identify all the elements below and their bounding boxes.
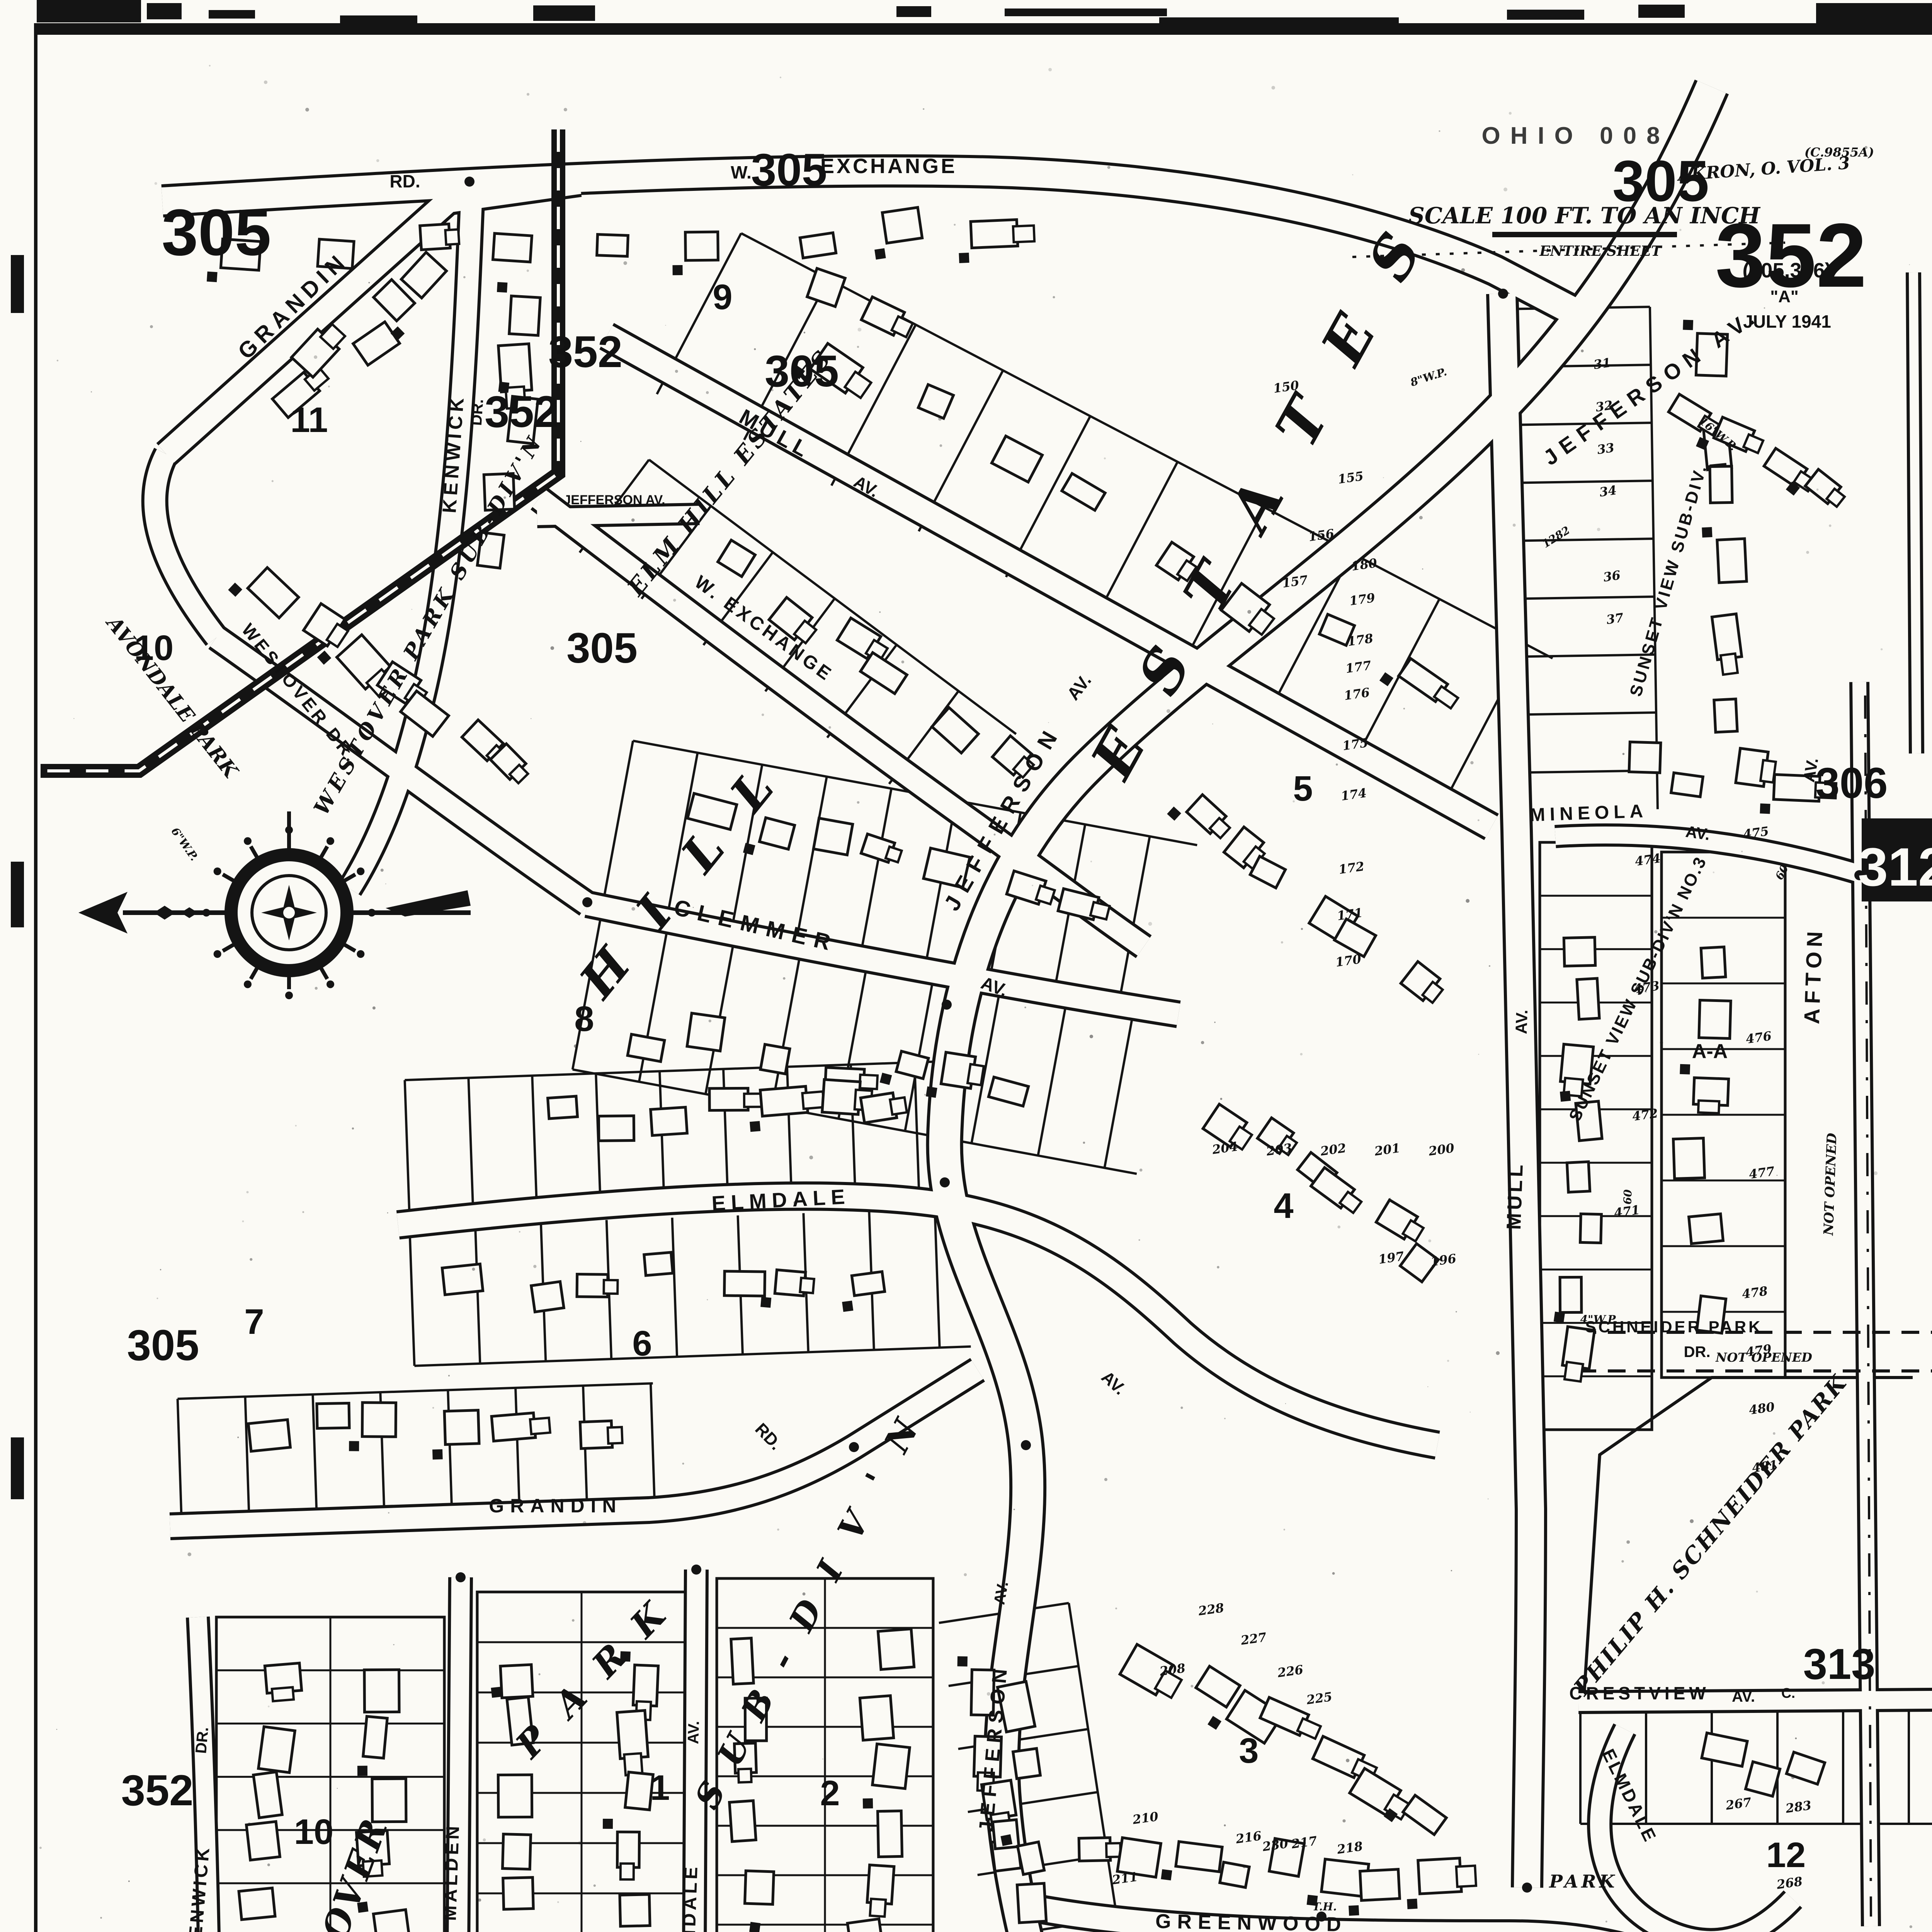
area-label-sunset-view-north: SUNSET VIEW SUB-DIV. — [1626, 461, 1711, 699]
block-number: 9 — [713, 277, 732, 317]
street-label-schneider-dr: DR. — [1684, 1344, 1711, 1361]
speckle — [268, 1706, 270, 1708]
sheet-ref-left-305: 305 — [127, 1321, 199, 1369]
block-number: 7 — [244, 1302, 264, 1342]
speckle — [1115, 1607, 1117, 1609]
lot-number: 155 — [1337, 469, 1364, 487]
lot-line — [1509, 655, 1655, 657]
junction-dot — [1021, 1440, 1031, 1450]
speckle — [572, 1619, 575, 1622]
speckle — [574, 1044, 577, 1048]
house — [957, 219, 1035, 263]
utility-mark: 6"W.P. — [168, 825, 201, 863]
speckle — [1470, 1412, 1471, 1413]
house — [1702, 1733, 1747, 1767]
speckle — [709, 1020, 711, 1022]
speckle — [295, 1125, 297, 1126]
speckle — [828, 726, 831, 729]
lot-line — [468, 1078, 473, 1217]
speckle — [246, 1191, 248, 1193]
speckle — [1014, 1509, 1015, 1510]
sheet-ref-exchange-305: 305 — [751, 145, 827, 196]
lot-number: 474 — [1634, 851, 1662, 869]
speckle — [857, 346, 859, 348]
house — [1746, 1762, 1780, 1796]
speckle — [1605, 1921, 1607, 1923]
lot-number: 36 — [1602, 568, 1621, 585]
house — [1679, 1064, 1729, 1114]
street-label-grandin-lower-rd: RD. — [751, 1420, 785, 1454]
speckle — [1910, 1925, 1912, 1928]
street-note-afton-not-opened: NOT OPENED — [1821, 1133, 1840, 1236]
house — [431, 1410, 480, 1460]
lot-number: 171 — [1336, 905, 1364, 923]
house — [1701, 947, 1726, 978]
speckle — [1816, 488, 1818, 490]
speckle — [1509, 112, 1512, 115]
house — [1714, 699, 1737, 732]
speckle — [411, 609, 412, 610]
speckle — [314, 355, 317, 359]
punch-hole-mark — [11, 862, 24, 927]
house — [1786, 1752, 1825, 1784]
speckle — [1346, 1759, 1349, 1762]
lot-number: 37 — [1605, 610, 1624, 627]
block-number: 5 — [1293, 769, 1313, 808]
sheet-ref-southwest-352: 352 — [121, 1766, 194, 1815]
lot-number: 176 — [1343, 685, 1371, 703]
house — [847, 1919, 885, 1932]
speckle — [1478, 819, 1480, 821]
house — [1405, 1857, 1477, 1909]
speckle — [1167, 709, 1170, 713]
block-number: 1 — [650, 1768, 670, 1808]
block-number: 4 — [1274, 1186, 1293, 1226]
house — [247, 1821, 280, 1860]
speckle — [155, 182, 157, 185]
title-scale-note: SCALE 100 FT. TO AN INCH — [1408, 202, 1761, 229]
house — [1311, 1168, 1365, 1216]
speckle — [783, 977, 785, 980]
street-label-mull-vert: MULL — [1503, 1161, 1527, 1230]
street-label-sundale: SUNDALE — [677, 1864, 702, 1932]
utility-mark: 1282 — [1540, 524, 1572, 550]
scale-note-underline — [1492, 232, 1677, 237]
speckle — [1829, 524, 1831, 527]
speckle — [1478, 1054, 1479, 1055]
speckle — [1597, 528, 1600, 531]
lot-number: 202 — [1319, 1141, 1347, 1159]
speckle — [1713, 872, 1714, 873]
house — [401, 252, 447, 298]
speckle — [1412, 1221, 1413, 1222]
speckle — [804, 332, 805, 333]
speckle — [706, 391, 709, 394]
speckle — [1293, 800, 1294, 802]
speckle — [527, 269, 529, 272]
speckle — [923, 108, 924, 110]
lot-line — [1038, 992, 1068, 1156]
house — [988, 1077, 1028, 1106]
speckle — [100, 1917, 102, 1919]
speckle — [1032, 885, 1033, 886]
speckle — [1773, 1432, 1776, 1435]
speckle — [39, 1847, 42, 1849]
map-canvas: 9111087654321101231323334363715015515615… — [0, 0, 1932, 1932]
lot-number: 170 — [1335, 952, 1362, 970]
street-label-mineola-av: AV. — [1685, 822, 1711, 844]
house — [860, 1696, 893, 1740]
speckle — [1034, 1739, 1035, 1740]
house — [880, 1048, 929, 1093]
house — [239, 1888, 275, 1920]
scan-blob — [340, 15, 417, 24]
speckle — [387, 1213, 388, 1214]
speckle — [631, 519, 635, 522]
speckle — [1626, 1540, 1630, 1544]
scan-blob — [1507, 10, 1584, 20]
speckle — [1284, 1529, 1285, 1530]
speckle — [463, 276, 466, 278]
scan-blob — [1159, 17, 1399, 24]
lot-line — [672, 1218, 677, 1357]
speckle — [1337, 1226, 1340, 1229]
speckle — [1690, 1519, 1694, 1523]
speckle — [352, 1128, 354, 1129]
street-label-sundale-av: AV. — [685, 1721, 702, 1745]
speckle — [1764, 307, 1765, 309]
speckle — [857, 801, 860, 804]
speckle — [432, 1407, 434, 1408]
speckle — [1139, 1168, 1143, 1172]
street-label-jefferson-stub: JEFFERSON AV. — [563, 493, 665, 507]
house — [1702, 526, 1747, 583]
house — [861, 834, 903, 865]
title-scale-scope: ENTIRE SHEET — [1539, 243, 1662, 259]
house — [731, 1638, 753, 1684]
lot-number: 218 — [1336, 1839, 1364, 1857]
speckle — [673, 599, 676, 602]
speckle — [675, 370, 678, 373]
house — [495, 282, 541, 335]
speckle — [1513, 524, 1516, 527]
street-label-kenwick-lower-dr: DR. — [192, 1726, 212, 1754]
speckle — [1403, 708, 1405, 709]
speckle — [302, 1211, 304, 1213]
speckle — [583, 1521, 586, 1524]
speckle — [519, 1231, 520, 1233]
lot-line — [1508, 597, 1655, 599]
house — [1161, 1840, 1222, 1886]
speckle — [1301, 928, 1303, 930]
junction-dot — [1522, 1883, 1532, 1893]
scan-blob — [209, 10, 255, 19]
speckle — [435, 1209, 437, 1210]
area-label-section-aa: A-A — [1692, 1040, 1728, 1063]
house — [492, 1412, 550, 1441]
speckle — [1806, 551, 1809, 554]
speckle — [940, 444, 942, 447]
house — [1058, 889, 1111, 923]
lot-number: 268 — [1776, 1874, 1803, 1892]
speckle — [305, 108, 309, 112]
speckle — [1090, 1035, 1093, 1038]
speckle — [209, 65, 211, 66]
lot-number: 177 — [1345, 658, 1372, 676]
block-number: 2 — [820, 1774, 840, 1813]
house — [807, 269, 845, 307]
speckle — [1224, 1418, 1226, 1419]
speckle — [1342, 1819, 1345, 1822]
lot-line — [475, 1225, 480, 1364]
speckle — [1503, 187, 1507, 191]
street-label-elmdale-av: AV. — [1098, 1367, 1129, 1399]
lot-line — [448, 1390, 452, 1514]
lot-number: 480 — [1748, 1400, 1776, 1418]
speckle — [551, 646, 554, 650]
house — [839, 1272, 887, 1312]
speckle — [858, 328, 862, 332]
house — [531, 1282, 564, 1312]
lot-line — [1506, 481, 1653, 483]
house — [745, 1871, 774, 1905]
house — [597, 235, 628, 257]
speckle — [1874, 1171, 1878, 1175]
sheet-ref-southeast-313: 313 — [1803, 1640, 1876, 1688]
speckle — [1881, 648, 1883, 650]
scan-blob — [1005, 9, 1167, 16]
house — [1062, 473, 1105, 510]
speckle — [1791, 1776, 1795, 1779]
spread-letter-park_spread: A — [544, 1677, 595, 1728]
speckle — [1201, 1041, 1204, 1044]
lot-number: 211 — [1111, 1869, 1139, 1888]
speckle — [557, 1901, 559, 1903]
junction-dot — [849, 1442, 859, 1452]
house — [863, 1798, 902, 1857]
sheet-ref-east-patch: 312 — [1858, 837, 1932, 897]
block-number: 12 — [1766, 1835, 1806, 1875]
speckle — [1104, 457, 1106, 459]
lot-number: 204 — [1211, 1139, 1239, 1157]
speckle — [483, 1838, 486, 1842]
house — [724, 1271, 765, 1296]
speckle — [879, 611, 881, 613]
speckle — [1909, 264, 1910, 265]
house — [502, 1834, 531, 1869]
lot-number: 179 — [1349, 590, 1376, 609]
speckle — [1024, 1007, 1026, 1008]
house — [1567, 1162, 1590, 1192]
house — [742, 1922, 786, 1932]
block-number: 10 — [294, 1812, 333, 1852]
speckle — [1217, 1266, 1219, 1268]
house — [687, 1013, 725, 1051]
speckle — [128, 1881, 130, 1882]
house — [1564, 937, 1595, 966]
house — [442, 1264, 483, 1295]
house — [730, 1801, 756, 1842]
street-label-mineola: MINEOLA — [1529, 801, 1648, 826]
sheet-ref-west-352: 352 — [548, 327, 622, 377]
speckle — [381, 869, 384, 872]
house — [709, 1088, 762, 1111]
utility-mark: 8"W.P. — [1408, 365, 1448, 389]
speckle — [337, 1788, 338, 1789]
house — [813, 818, 852, 855]
lot-number: 196 — [1430, 1251, 1457, 1269]
speckle — [1332, 1572, 1335, 1575]
street-label-exchange: EXCHANGE — [820, 155, 957, 178]
house — [364, 1670, 399, 1712]
street-label-schneider-park: SCHNEIDER PARK — [1585, 1318, 1763, 1336]
house — [878, 1629, 914, 1669]
junction-dot — [691, 1565, 701, 1575]
speckle — [1447, 1360, 1449, 1362]
utility-mark: T.H. — [1312, 1900, 1337, 1913]
speckle — [1107, 166, 1111, 169]
speckle — [682, 1463, 684, 1464]
street-label-crestview-c: C. — [1781, 1685, 1795, 1701]
house — [1689, 1214, 1723, 1243]
area-label-elmdale-park: PARK — [1548, 1871, 1617, 1892]
house — [317, 1403, 349, 1428]
street-label-greenwood: GREENWOOD — [1155, 1910, 1347, 1932]
junction-dot — [464, 177, 474, 187]
speckle — [1470, 761, 1473, 764]
lot-line — [861, 789, 891, 952]
speckle — [777, 1529, 779, 1531]
house — [349, 1402, 396, 1451]
street-label-grandin-rd: RD. — [389, 171, 420, 191]
house — [672, 232, 718, 275]
speckle — [1427, 1386, 1428, 1387]
speckle — [578, 1841, 582, 1845]
speckle — [156, 1298, 158, 1299]
speckle — [368, 282, 370, 284]
house — [1577, 978, 1599, 1019]
block-number: 3 — [1239, 1731, 1259, 1770]
speckle — [1139, 1239, 1140, 1241]
speckle — [1679, 229, 1681, 231]
lot-number: 471 — [1613, 1202, 1641, 1221]
house — [228, 558, 299, 628]
speckle — [809, 1156, 813, 1160]
house — [918, 384, 954, 418]
house — [866, 1865, 894, 1917]
speckle — [1566, 290, 1568, 291]
house — [1671, 773, 1703, 797]
lot-number: 178 — [1347, 631, 1374, 649]
lot-line — [532, 1076, 537, 1215]
sanborn-map-sheet: 9111087654321101231323334363715015515615… — [0, 0, 1932, 1932]
house — [493, 233, 532, 262]
house — [1629, 742, 1661, 773]
house — [644, 1252, 673, 1276]
title-stamp: OHIO 008 — [1481, 122, 1670, 149]
house — [1379, 651, 1461, 723]
speckle — [448, 1375, 450, 1376]
speckle — [1451, 1570, 1452, 1571]
spread-letter-estates_spread: E — [1308, 303, 1390, 377]
speckle — [472, 1268, 475, 1271]
speckle — [315, 987, 318, 990]
house — [869, 207, 924, 260]
speckle — [1190, 1685, 1193, 1687]
house — [617, 1711, 650, 1776]
house — [259, 1727, 295, 1773]
junction-dot — [582, 897, 592, 907]
lot-number: 477 — [1748, 1164, 1776, 1182]
lot-line — [178, 1399, 182, 1522]
speckle — [1224, 1824, 1226, 1826]
block-number: 6 — [632, 1324, 652, 1363]
speckle — [594, 1884, 596, 1887]
lot-number: 172 — [1338, 859, 1365, 877]
speckle — [73, 718, 74, 719]
lot-line — [410, 1227, 414, 1366]
speckle — [328, 386, 330, 388]
spread-letter-subdiv_spread: I — [808, 1553, 852, 1588]
speckle — [623, 261, 627, 265]
speckle — [187, 1553, 191, 1556]
speckle — [478, 1898, 481, 1901]
speckle — [1741, 851, 1743, 852]
speckle — [1756, 1591, 1758, 1593]
lot-number: 227 — [1240, 1630, 1267, 1648]
speckle — [1104, 1478, 1107, 1481]
lot-line — [245, 1396, 249, 1520]
lot-line — [796, 777, 827, 940]
speckle — [91, 391, 92, 393]
speckle — [539, 1673, 541, 1675]
speckle — [924, 1094, 926, 1095]
north-arrow — [78, 811, 471, 999]
speckle — [1466, 899, 1469, 903]
speckle — [564, 108, 567, 111]
lot-number: 472 — [1631, 1106, 1659, 1124]
speckle — [1439, 130, 1440, 132]
speckle — [631, 907, 635, 910]
house — [602, 1819, 639, 1879]
street-label-grandin-lower: GRANDIN — [489, 1495, 622, 1517]
street-note-schneider-not-opened: NOT OPENED — [1715, 1350, 1812, 1365]
sheet-ref-west-352b: 352 — [485, 387, 559, 437]
street-label-afton: AFTON — [1799, 926, 1827, 1024]
speckle — [57, 360, 58, 361]
speckle — [1018, 873, 1019, 874]
speckle — [1419, 516, 1423, 519]
speckle — [1777, 1887, 1779, 1889]
junction-dot — [456, 1572, 466, 1582]
speckle — [1422, 568, 1423, 570]
speckle — [1300, 1053, 1303, 1056]
lot-number: 200 — [1427, 1141, 1455, 1159]
lot-number: 478 — [1741, 1284, 1769, 1302]
scan-blob — [147, 3, 182, 19]
speckle — [372, 1007, 376, 1010]
street-label-crestview-av: AV. — [1732, 1688, 1755, 1705]
utility-mark: 60 — [1621, 1189, 1634, 1205]
speckle — [1352, 174, 1353, 175]
speckle — [150, 325, 153, 328]
house — [248, 1420, 291, 1451]
punch-hole-mark — [11, 1437, 24, 1499]
house — [992, 436, 1042, 482]
house — [253, 1772, 282, 1818]
speckle — [242, 1220, 244, 1222]
junction-dot — [1498, 289, 1508, 299]
